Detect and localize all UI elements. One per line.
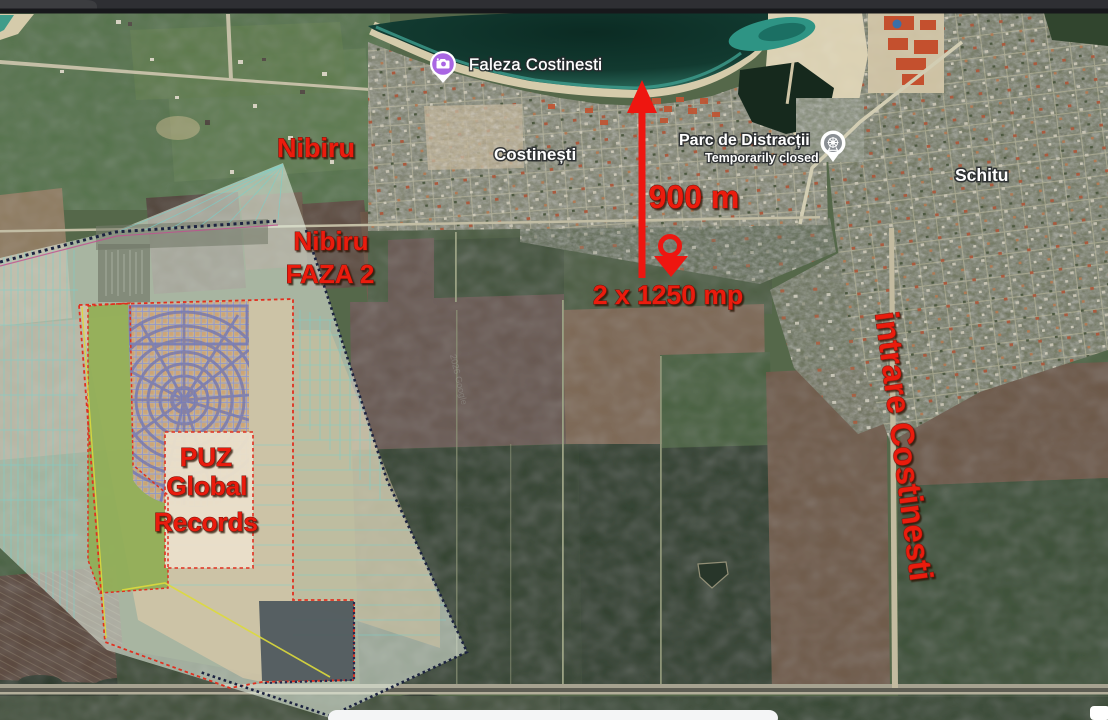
svg-text:2 x 1250 mp: 2 x 1250 mp bbox=[593, 280, 743, 310]
svg-text:Schitu: Schitu bbox=[955, 165, 1008, 185]
svg-text:Temporarily closed: Temporarily closed bbox=[705, 151, 819, 165]
svg-text:Parc de Distracții: Parc de Distracții bbox=[679, 132, 810, 149]
svg-text:Faleza Costinesti: Faleza Costinesti bbox=[469, 56, 602, 74]
svg-text:Costinești: Costinești bbox=[494, 145, 576, 164]
svg-text:FAZA 2: FAZA 2 bbox=[286, 259, 375, 289]
svg-text:900 m: 900 m bbox=[649, 179, 740, 215]
svg-text:Nibiru: Nibiru bbox=[293, 226, 368, 256]
svg-text:Nibiru: Nibiru bbox=[277, 133, 355, 163]
svg-text:Global: Global bbox=[167, 471, 248, 501]
svg-text:PUZ: PUZ bbox=[180, 442, 232, 472]
svg-text:Records: Records bbox=[154, 507, 258, 537]
